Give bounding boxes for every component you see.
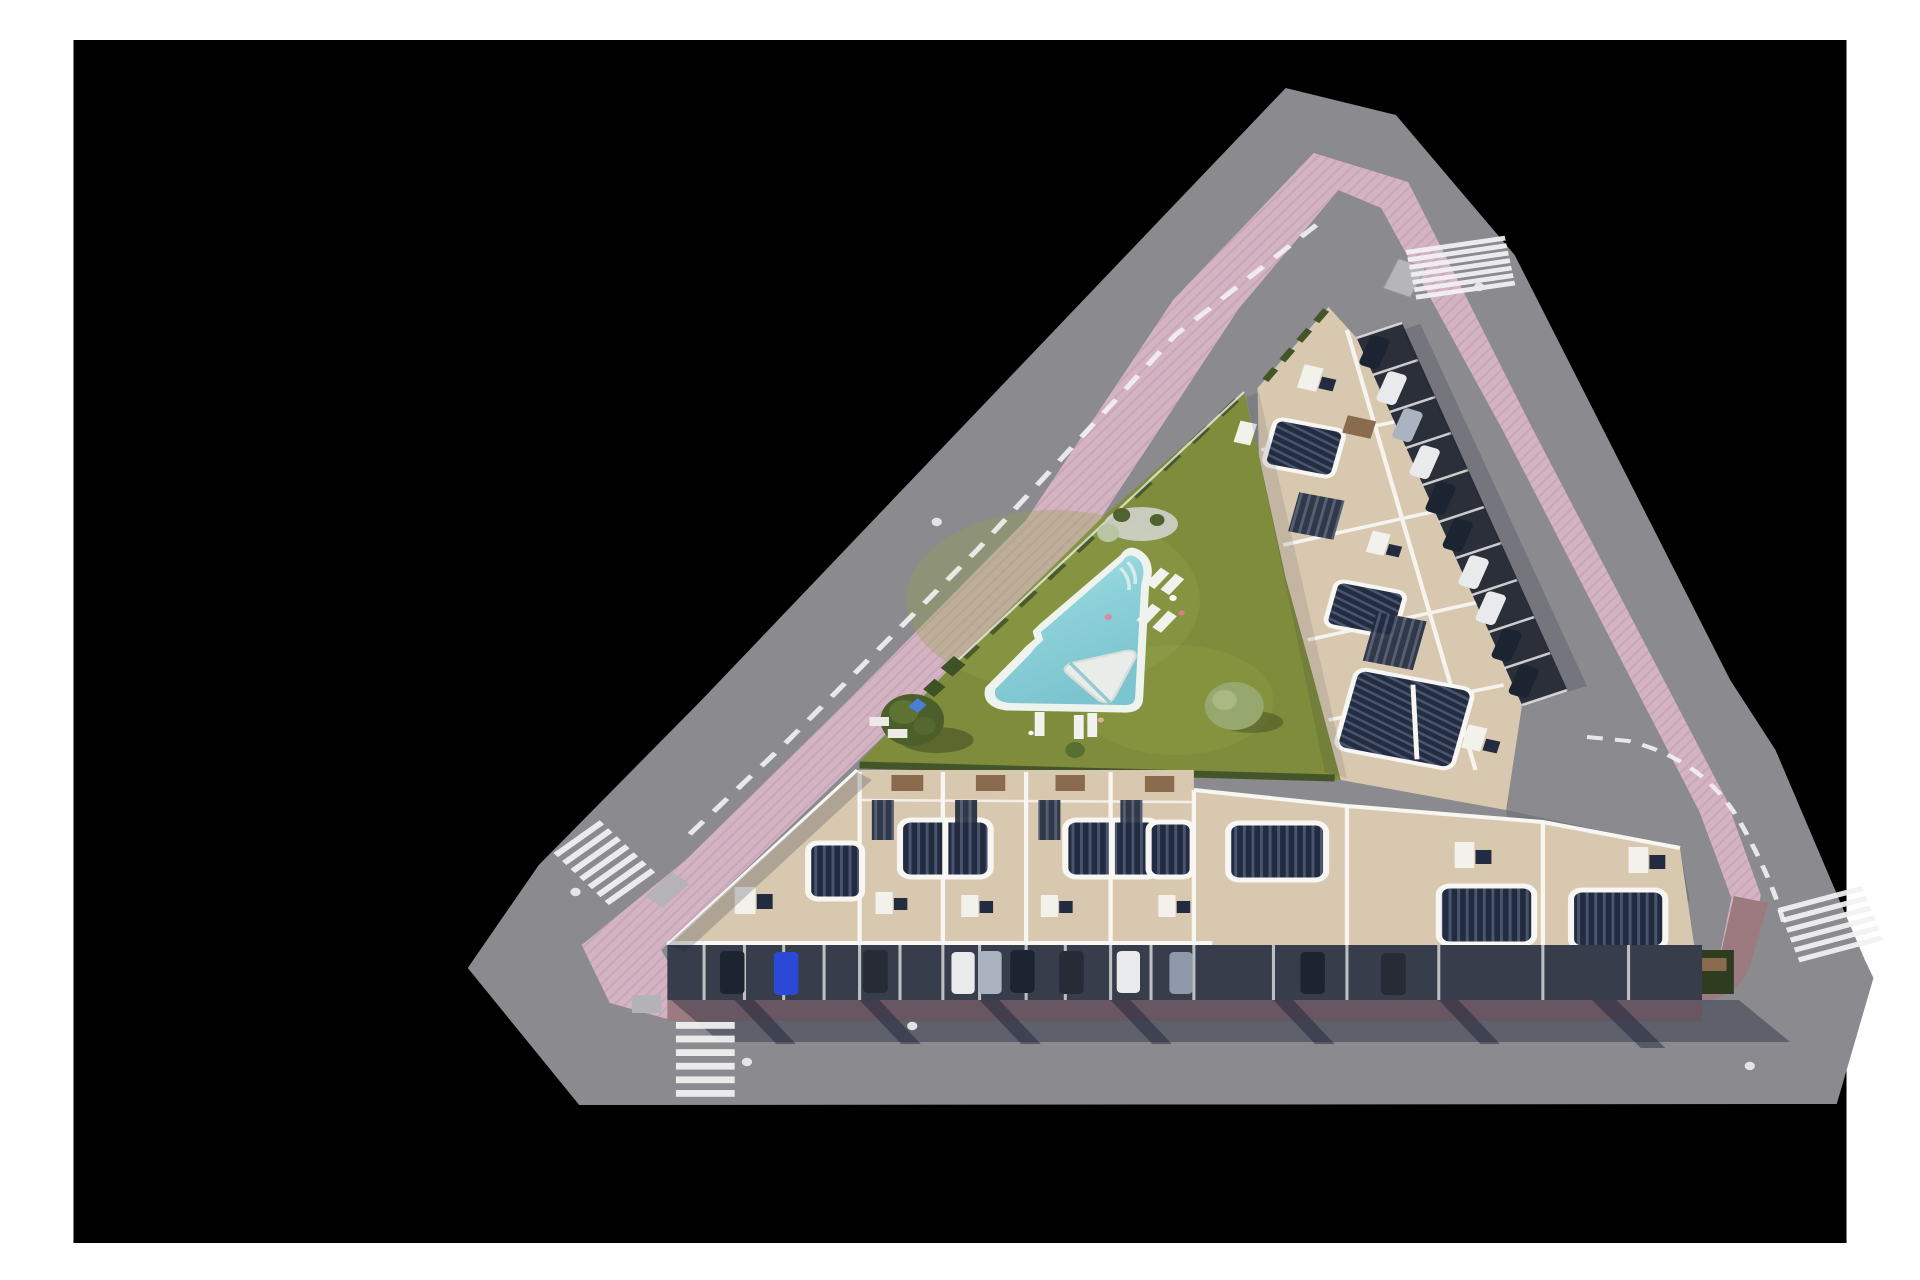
stairs — [1120, 800, 1142, 840]
pergola — [1571, 890, 1665, 948]
tactile-pad-bottom — [632, 995, 661, 1013]
stairs — [1038, 800, 1060, 840]
pergola — [1149, 822, 1193, 877]
pergola — [1228, 823, 1326, 880]
corner-table — [1702, 958, 1726, 971]
stairs — [955, 800, 977, 840]
person — [1098, 718, 1104, 723]
stairs — [872, 800, 894, 840]
site-plan-render — [0, 0, 1920, 1280]
person — [1179, 611, 1185, 616]
pergola — [1439, 886, 1535, 944]
swimmer — [1104, 614, 1111, 620]
pergola — [808, 843, 862, 899]
palm-shrub — [1065, 742, 1085, 758]
